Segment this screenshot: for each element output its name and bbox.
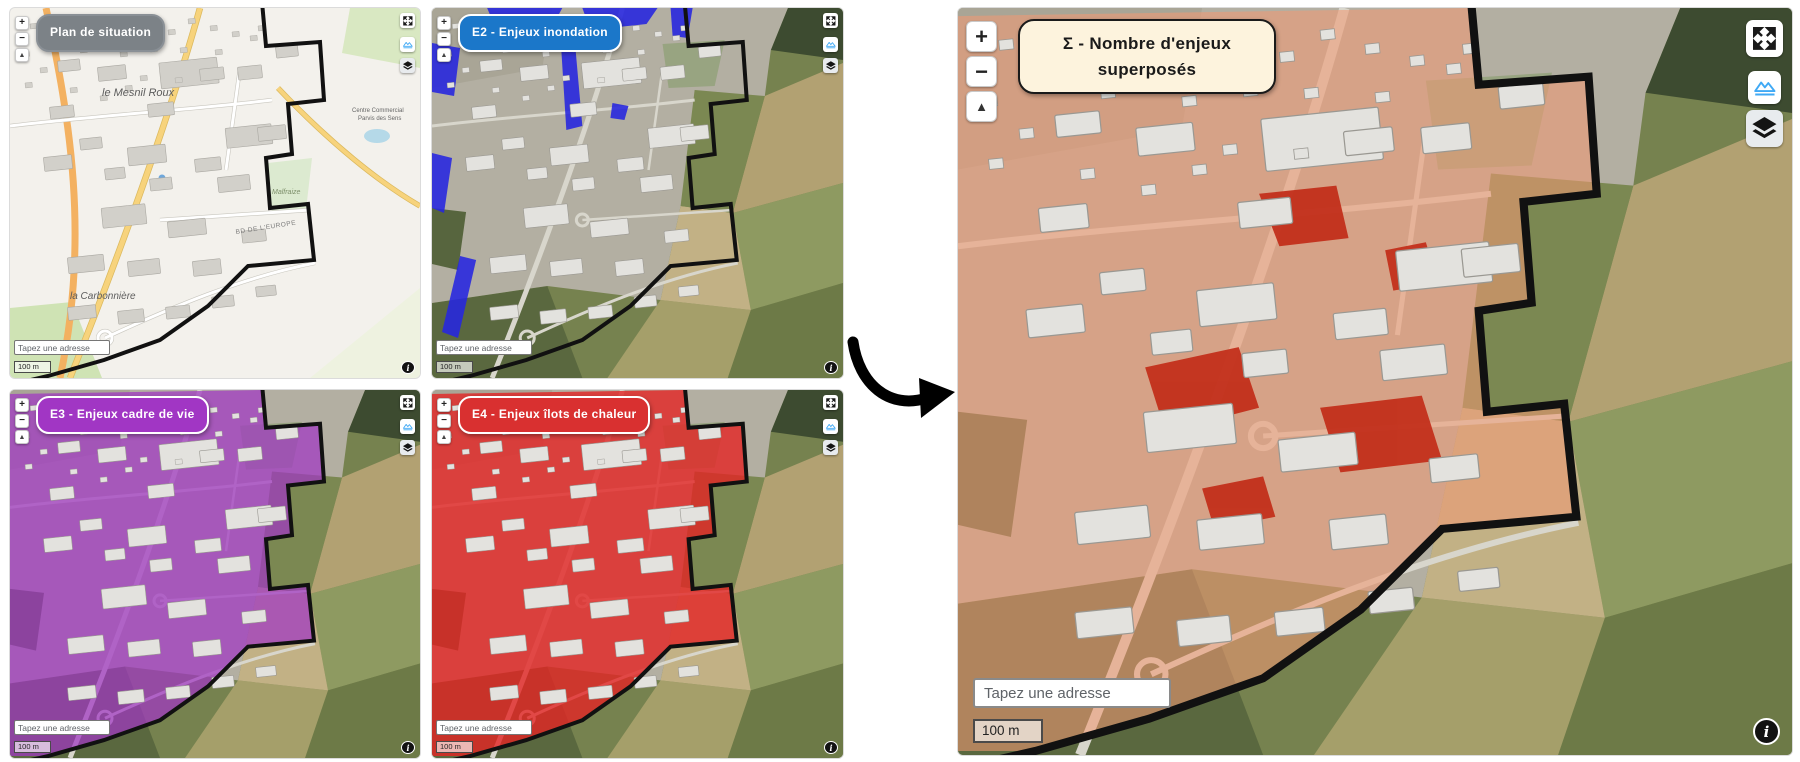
- layers-icon[interactable]: [1746, 110, 1783, 147]
- terrain-icon[interactable]: [823, 419, 838, 434]
- tilt-button[interactable]: ▲: [966, 91, 997, 122]
- info-button[interactable]: i: [1753, 718, 1780, 745]
- zoom-in-button[interactable]: +: [966, 21, 997, 52]
- map-tool-icons: [823, 395, 838, 455]
- map-panel-plan: le Mesnil Roux la Carbonnière BD DE L'EU…: [10, 8, 420, 378]
- map-canvas[interactable]: le Mesnil Roux la Carbonnière BD DE L'EU…: [10, 8, 420, 378]
- panel-title: Plan de situation: [36, 14, 165, 52]
- map-canvas[interactable]: [432, 390, 843, 758]
- address-search-input[interactable]: [14, 340, 110, 355]
- fullscreen-icon[interactable]: [823, 13, 838, 28]
- scale-bar: 100 m: [14, 361, 51, 373]
- tilt-button[interactable]: ▲: [15, 48, 29, 62]
- terrain-icon[interactable]: [400, 37, 415, 52]
- layers-icon[interactable]: [400, 58, 415, 73]
- terrain-icon[interactable]: [823, 37, 838, 52]
- svg-text:Malfraize: Malfraize: [272, 189, 301, 196]
- map-canvas[interactable]: [432, 8, 843, 378]
- tilt-button[interactable]: ▲: [437, 430, 451, 444]
- address-search-input[interactable]: [14, 720, 110, 735]
- tilt-button[interactable]: ▲: [15, 430, 29, 444]
- zoom-out-button[interactable]: −: [15, 32, 29, 46]
- panel-title: Σ - Nombre d'enjeux superposés: [1018, 19, 1276, 94]
- map-tool-icons: [400, 13, 415, 73]
- map-panel-e3: + − ▲ E3 - Enjeux cadre de vie: [10, 390, 420, 758]
- terrain-icon[interactable]: [400, 419, 415, 434]
- svg-text:la Carbonnière: la Carbonnière: [70, 291, 136, 302]
- zoom-in-button[interactable]: +: [437, 16, 451, 30]
- panel-title: E4 - Enjeux îlots de chaleur: [458, 396, 650, 434]
- fullscreen-icon[interactable]: [400, 13, 415, 28]
- zoom-in-button[interactable]: +: [437, 398, 451, 412]
- fullscreen-icon[interactable]: [1746, 20, 1783, 57]
- zoom-out-button[interactable]: −: [437, 414, 451, 428]
- zoom-out-button[interactable]: −: [437, 32, 451, 46]
- map-panel-e2: + − ▲ E2 - Enjeux inondation: [432, 8, 843, 378]
- zoom-controls: + − ▲: [437, 398, 451, 444]
- multi-map-comparison-app: le Mesnil Roux la Carbonnière BD DE L'EU…: [0, 0, 1800, 762]
- map-canvas[interactable]: [958, 8, 1792, 755]
- map-tool-icons: [823, 13, 838, 73]
- zoom-controls: + − ▲: [966, 21, 997, 122]
- svg-text:Centre Commercial: Centre Commercial: [352, 108, 404, 114]
- svg-text:Parvis des Sens: Parvis des Sens: [358, 116, 401, 122]
- address-search-input[interactable]: [973, 678, 1171, 708]
- panel-title: E2 - Enjeux inondation: [458, 14, 622, 52]
- scale-bar: 100 m: [14, 741, 51, 753]
- map-tool-icons: [1746, 20, 1783, 147]
- terrain-icon[interactable]: [1748, 71, 1781, 104]
- map-canvas[interactable]: [10, 390, 420, 758]
- scale-bar: 100 m: [973, 719, 1043, 743]
- svg-text:le Mesnil Roux: le Mesnil Roux: [102, 87, 175, 99]
- tilt-button[interactable]: ▲: [437, 48, 451, 62]
- map-tool-icons: [400, 395, 415, 455]
- zoom-in-button[interactable]: +: [15, 16, 29, 30]
- layers-icon[interactable]: [823, 440, 838, 455]
- zoom-in-button[interactable]: +: [15, 398, 29, 412]
- layers-icon[interactable]: [400, 440, 415, 455]
- address-search-input[interactable]: [436, 720, 532, 735]
- info-button[interactable]: i: [401, 361, 415, 374]
- info-button[interactable]: i: [401, 741, 415, 754]
- transition-arrow: [843, 336, 957, 432]
- panel-title: E3 - Enjeux cadre de vie: [36, 396, 209, 434]
- zoom-controls: + − ▲: [437, 16, 451, 62]
- zoom-controls: + − ▲: [15, 398, 29, 444]
- layers-icon[interactable]: [823, 58, 838, 73]
- map-panel-e4: + − ▲ E4 - Enjeux îlots de chaleur: [432, 390, 843, 758]
- zoom-out-button[interactable]: −: [966, 56, 997, 87]
- zoom-controls: + − ▲: [15, 16, 29, 62]
- fullscreen-icon[interactable]: [400, 395, 415, 410]
- map-panel-sum: + − ▲ Σ - Nombre d'enjeux superposés: [958, 8, 1792, 755]
- address-search-input[interactable]: [436, 340, 532, 355]
- info-button[interactable]: i: [824, 361, 838, 374]
- zoom-out-button[interactable]: −: [15, 414, 29, 428]
- fullscreen-icon[interactable]: [823, 395, 838, 410]
- scale-bar: 100 m: [436, 361, 473, 373]
- info-button[interactable]: i: [824, 741, 838, 754]
- scale-bar: 100 m: [436, 741, 473, 753]
